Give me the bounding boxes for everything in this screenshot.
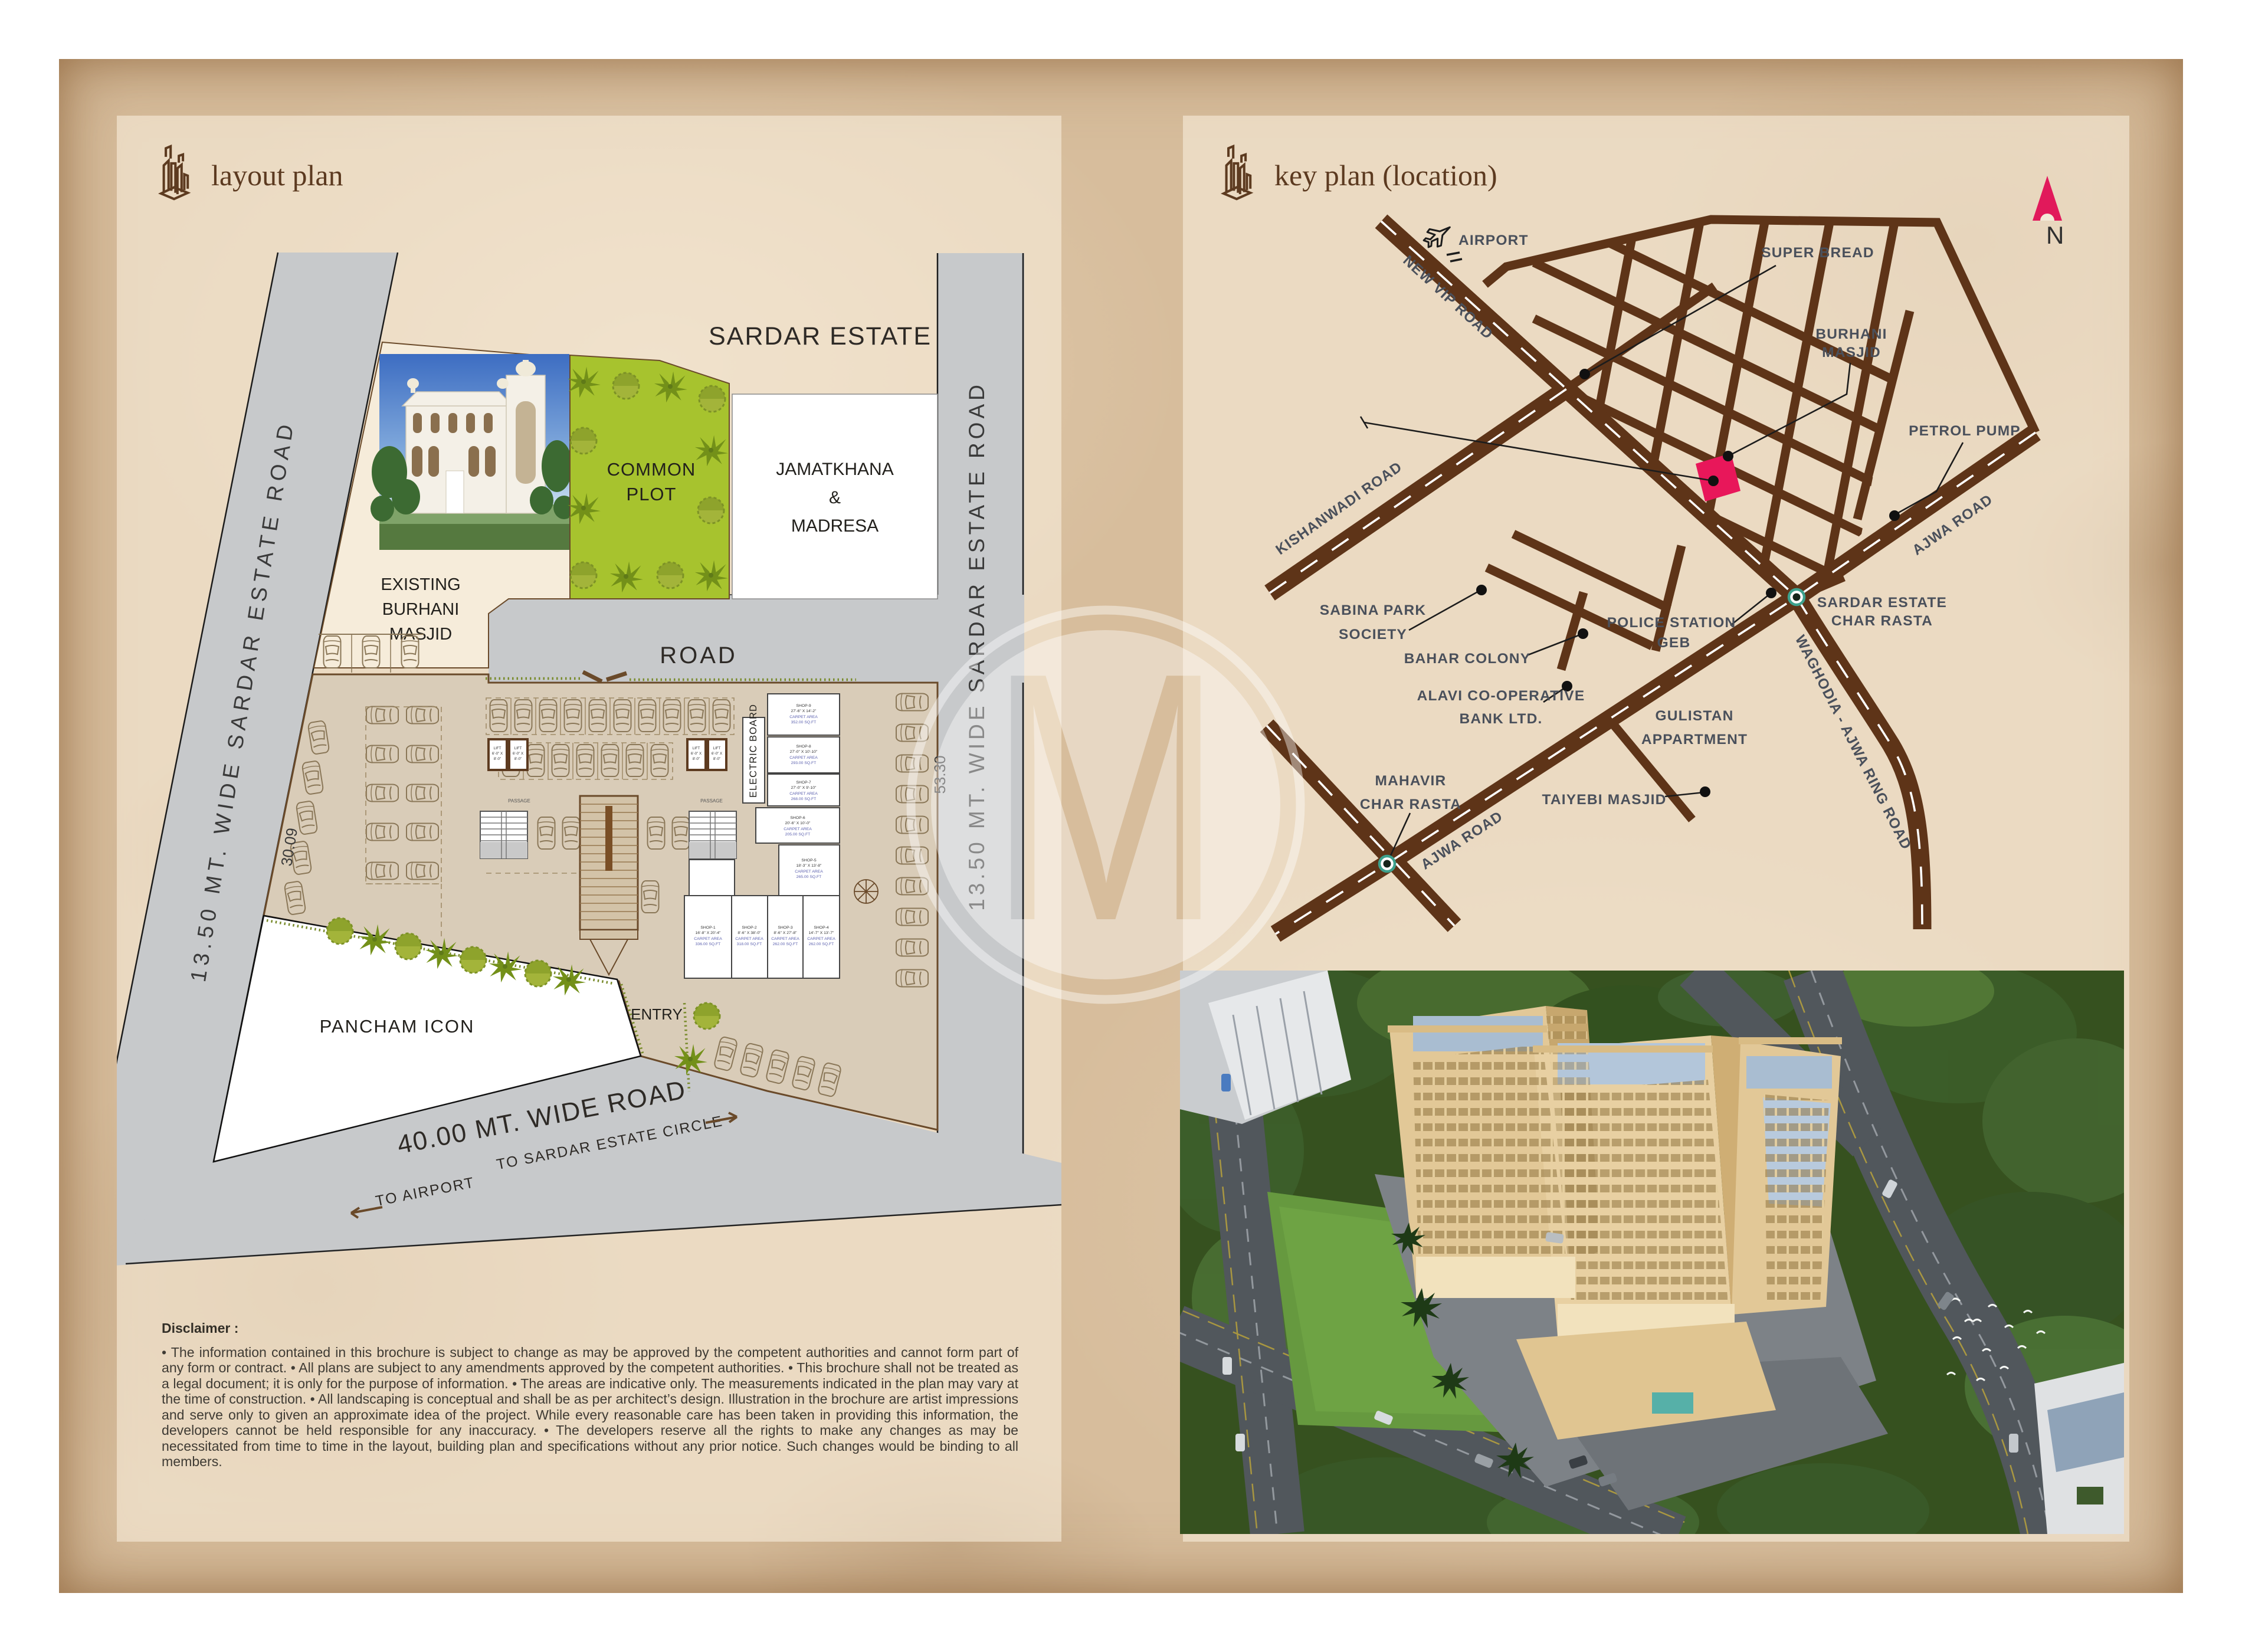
svg-text:PANCHAM ICON: PANCHAM ICON (320, 1016, 475, 1037)
svg-text:SHOP-3: SHOP-3 (778, 926, 793, 930)
svg-text:ENTRY: ENTRY (631, 1005, 683, 1023)
svg-text:BANK LTD.: BANK LTD. (1460, 711, 1543, 727)
svg-text:SHOP-9: SHOP-9 (796, 704, 811, 708)
svg-text:GULISTAN: GULISTAN (1656, 708, 1734, 724)
svg-text:CARPET AREA: CARPET AREA (735, 937, 763, 941)
svg-text:CARPET AREA: CARPET AREA (771, 937, 799, 941)
svg-text:8'-6" X 38'-0": 8'-6" X 38'-0" (737, 931, 761, 935)
svg-text:265.00 SQ.FT: 265.00 SQ.FT (796, 875, 822, 879)
svg-text:EXISTING: EXISTING (381, 575, 460, 594)
svg-text:CARPET AREA: CARPET AREA (807, 937, 835, 941)
svg-text:PASSAGE: PASSAGE (700, 798, 723, 804)
svg-text:SHOP-8: SHOP-8 (796, 745, 811, 749)
svg-text:APPARTMENT: APPARTMENT (1641, 732, 1748, 748)
svg-text:SARDAR ESTATE: SARDAR ESTATE (1817, 595, 1947, 611)
svg-text:27'-0" X 10'-10": 27'-0" X 10'-10" (790, 750, 818, 754)
svg-text:CARPET AREA: CARPET AREA (784, 827, 812, 831)
svg-text:GEB: GEB (1657, 635, 1691, 651)
svg-text:6'-0" X: 6'-0" X (513, 752, 523, 756)
svg-text:JAMATKHANA: JAMATKHANA (776, 460, 893, 479)
svg-text:MADRESA: MADRESA (791, 516, 879, 536)
svg-text:SHOP-1: SHOP-1 (700, 926, 716, 930)
svg-text:6'-0" X: 6'-0" X (492, 752, 503, 756)
svg-text:layout plan: layout plan (211, 159, 343, 192)
svg-text:AIRPORT: AIRPORT (1458, 232, 1529, 248)
svg-text:SARDAR ESTATE: SARDAR ESTATE (709, 322, 932, 350)
svg-text:ROAD: ROAD (660, 643, 737, 668)
svg-text:16'-8" X 20'-4": 16'-8" X 20'-4" (696, 931, 722, 935)
svg-text:6'-0" X: 6'-0" X (712, 752, 722, 756)
svg-text:SOCIETY: SOCIETY (1339, 627, 1407, 643)
svg-text:LIFT: LIFT (494, 746, 501, 750)
svg-text:262.00 SQ.FT: 262.00 SQ.FT (809, 942, 834, 946)
svg-text:SHOP-6: SHOP-6 (790, 816, 805, 820)
svg-text:CHAR RASTA: CHAR RASTA (1360, 796, 1461, 812)
svg-text:N: N (2046, 221, 2064, 249)
svg-text:SHOP-2: SHOP-2 (742, 926, 757, 930)
svg-text:318.00 SQ.FT: 318.00 SQ.FT (737, 942, 762, 946)
svg-text:CARPET AREA: CARPET AREA (789, 756, 818, 760)
svg-text:BURHANI: BURHANI (382, 600, 460, 619)
svg-text:20'-6" X 10'-0": 20'-6" X 10'-0" (785, 821, 811, 825)
svg-text:CARPET AREA: CARPET AREA (789, 715, 818, 719)
svg-text:ALAVI CO-OPERATIVE: ALAVI CO-OPERATIVE (1417, 688, 1585, 704)
svg-text:27'-6" X 14'-2": 27'-6" X 14'-2" (791, 709, 817, 713)
svg-text:BAHAR COLONY: BAHAR COLONY (1404, 651, 1530, 667)
svg-text:SHOP-4: SHOP-4 (814, 926, 829, 930)
svg-text:8'-0": 8'-0" (494, 757, 501, 761)
svg-text:LIFT: LIFT (514, 746, 522, 750)
svg-text:COMMON: COMMON (607, 459, 696, 480)
svg-text:352.00 SQ.FT: 352.00 SQ.FT (791, 720, 817, 725)
svg-text:18'-3" X 13'-8": 18'-3" X 13'-8" (796, 864, 822, 868)
svg-text:293.00 SQ.FT: 293.00 SQ.FT (791, 761, 817, 765)
svg-text:PETROL PUMP: PETROL PUMP (1909, 423, 2021, 439)
svg-text:NEW VIP ROAD: NEW VIP ROAD (1400, 253, 1496, 343)
svg-text:262.00 SQ.FT: 262.00 SQ.FT (773, 942, 798, 946)
svg-text:BURHANI: BURHANI (1815, 326, 1887, 342)
svg-text:205.00 SQ.FT: 205.00 SQ.FT (785, 832, 811, 837)
svg-text:268.00 SQ.FT: 268.00 SQ.FT (791, 797, 817, 801)
svg-text:CHAR RASTA: CHAR RASTA (1831, 613, 1933, 629)
svg-text:CARPET AREA: CARPET AREA (694, 937, 722, 941)
svg-text:MASJID: MASJID (1822, 345, 1881, 360)
svg-text:8'-6" X 27'-8": 8'-6" X 27'-8" (773, 931, 797, 935)
svg-text:14'-7" X 13'-7": 14'-7" X 13'-7" (809, 931, 835, 935)
svg-text:&: & (829, 488, 841, 507)
svg-text:27'-0" X 9'-10": 27'-0" X 9'-10" (791, 786, 817, 790)
svg-text:ELECTRIC BOARD: ELECTRIC BOARD (748, 704, 759, 798)
svg-text:8'-0": 8'-0" (693, 757, 700, 761)
svg-text:LIFT: LIFT (713, 746, 721, 750)
svg-text:PLOT: PLOT (627, 484, 677, 504)
svg-text:6'-0" X: 6'-0" X (691, 752, 702, 756)
svg-text:PASSAGE: PASSAGE (508, 798, 530, 804)
svg-text:TAIYEBI MASJID: TAIYEBI MASJID (1542, 792, 1666, 808)
svg-text:LIFT: LIFT (693, 746, 700, 750)
svg-text:key plan (location): key plan (location) (1274, 159, 1497, 192)
svg-text:MAHAVIR: MAHAVIR (1375, 773, 1447, 789)
svg-text:8'-0": 8'-0" (514, 757, 522, 761)
svg-text:8'-0": 8'-0" (713, 757, 720, 761)
svg-text:CARPET AREA: CARPET AREA (795, 870, 823, 874)
svg-text:336.00 SQ.FT: 336.00 SQ.FT (696, 942, 721, 946)
svg-text:POLICE STATION: POLICE STATION (1607, 615, 1736, 631)
svg-text:CARPET AREA: CARPET AREA (789, 792, 818, 796)
svg-text:SUPER BREAD: SUPER BREAD (1761, 245, 1874, 261)
svg-text:SHOP-7: SHOP-7 (796, 781, 811, 785)
svg-text:SHOP-5: SHOP-5 (801, 858, 817, 863)
